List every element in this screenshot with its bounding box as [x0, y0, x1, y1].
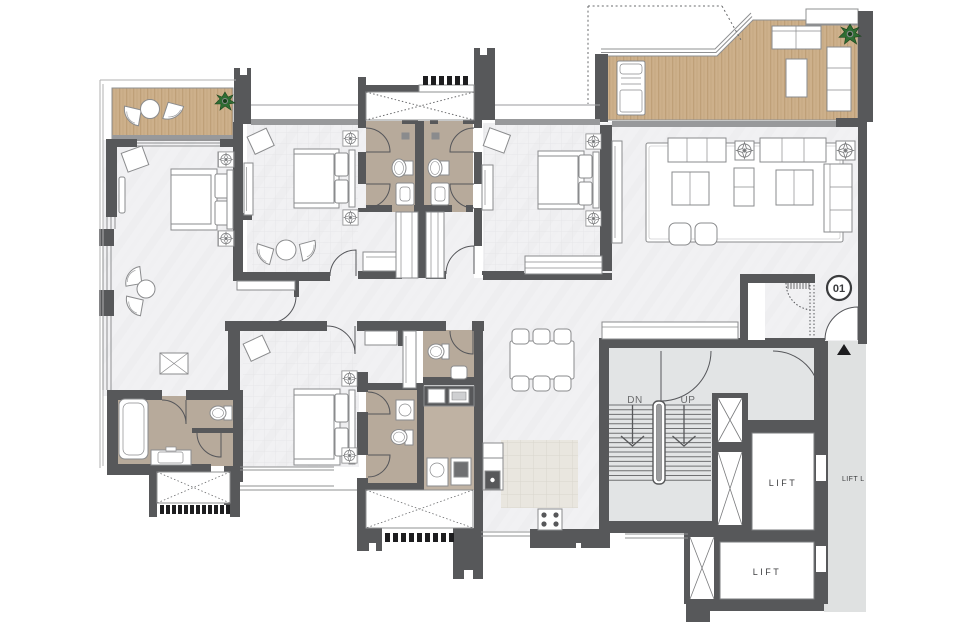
svg-text:LIFT: LIFT: [753, 567, 782, 577]
svg-text:01: 01: [833, 283, 845, 295]
svg-text:UP: UP: [681, 395, 696, 406]
svg-text:LIFT L: LIFT L: [842, 476, 865, 483]
svg-text:LIFT: LIFT: [769, 478, 798, 488]
svg-text:DN: DN: [627, 395, 642, 406]
